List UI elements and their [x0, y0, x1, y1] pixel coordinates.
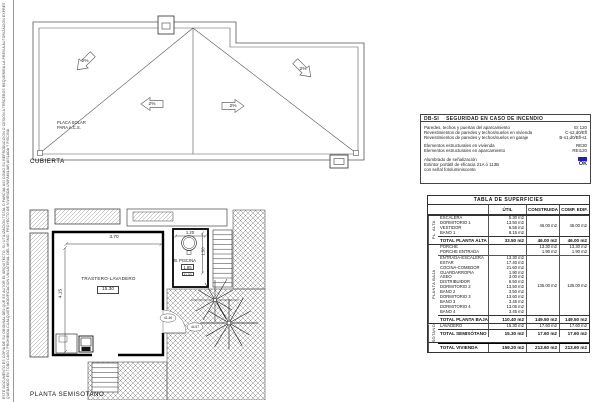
slope-label-4: 2% [297, 67, 309, 72]
total-label: TOTAL PLANTA BAJA [438, 316, 488, 324]
fire-safety-body: Paredes, techos y puertas del aparcamien… [421, 122, 590, 172]
total-util: 15.30 m2 [488, 330, 526, 338]
total-row: TOTAL PLANTA ALTA33.50 m246.00 m246.00 m… [438, 236, 589, 245]
room-block: ENTRADA-ESCALERA13.30 m2ESTAR17.40 m2COC… [438, 255, 589, 315]
slope-arrow-icons [73, 50, 316, 113]
pool-basin-circle [182, 236, 197, 251]
slope-label-2: 2% [146, 102, 158, 107]
total-construida: 46.00 m2 [526, 237, 559, 245]
group-side-label: SÓTANO [428, 324, 438, 342]
group-side-label: PLANTA BAJA [428, 245, 438, 323]
margin-microtext: ESTE DOCUMENTO ES COPIA DE SU ORIGINAL D… [2, 3, 11, 399]
drawing-sheet: ESTE DOCUMENTO ES COPIA DE SU ORIGINAL D… [0, 0, 604, 402]
dim-width-value: 3.70 [104, 235, 124, 240]
room-block-rows: PORCHE13.30 m213.30 m2PORCHE ENTRADA1.90… [438, 245, 589, 255]
header-spacer [428, 205, 488, 214]
total-label: TOTAL PLANTA ALTA [438, 237, 488, 245]
table-group: PLANTA BAJAPORCHE13.30 m213.30 m2PORCHE … [428, 244, 589, 323]
room-block: PORCHE13.30 m213.30 m2PORCHE ENTRADA1.90… [438, 245, 589, 255]
total-comp: 46.00 m2 [559, 237, 589, 245]
solar-panel-note-line1: PLACA SOLAR [57, 120, 86, 125]
pool-dim-value: 1.20 [181, 230, 199, 235]
roof-plan-drawing [25, 10, 375, 170]
total-comp: 149.50 m2 [559, 316, 589, 324]
trastero-room-label: TRASTERO-LAVADERO [81, 276, 136, 281]
laundry-fixtures [56, 334, 93, 353]
chimney-bottom [330, 155, 348, 168]
fire-row-label: Revestimientos de paredes y techos/suelo… [424, 135, 528, 140]
solar-panel-note-line2: PARA A.C.S. [57, 125, 86, 130]
room-block: ESCALERA5.30 m2DORMITORIO 113.50 m2VESTI… [438, 216, 589, 236]
fire-row-value [584, 167, 587, 172]
total-util: 159.20 m2 [488, 344, 526, 352]
surfaces-table: TABLA DE SUPERFICIESÚTILCONSTRUIDACOMP. … [427, 195, 590, 353]
group-side-label: PL. ALTA [428, 216, 438, 244]
fire-title: SEGURIDAD EN CASO DE INCENDIO [446, 117, 543, 119]
total-row: TOTAL PLANTA BAJA110.40 m2149.50 m2149.5… [438, 315, 589, 324]
surfaces-table-header: ÚTILCONSTRUIDACOMP. EDIF. [428, 205, 589, 215]
fire-row: Elementos estructurales en aparcamientoR… [424, 148, 587, 153]
fire-safety-box: DB-SI SEGURIDAD EN CASO DE INCENDIO Pare… [420, 114, 591, 184]
total-row: TOTAL VIVIENDA159.20 m2213.60 m2213.60 m… [438, 343, 589, 352]
total-util: 33.50 m2 [488, 237, 526, 245]
total-label: TOTAL VIVIENDA [438, 344, 488, 352]
total-row: TOTAL SEMISÓTANO15.30 m217.60 m217.60 m2 [438, 329, 589, 338]
fire-row: con señal fotoluminiscente [424, 167, 587, 172]
pool-room-label: B. PISCINA [173, 258, 197, 263]
solar-panel-note: PLACA SOLAR PARA A.C.S. [57, 120, 86, 131]
chimney-top [158, 16, 174, 34]
dim-height-value: 4.15 [59, 284, 64, 304]
table-group: TOTAL VIVIENDA159.20 m2213.60 m2213.60 m… [428, 342, 589, 352]
fire-paragraph: Alumbrado de señalizaciónExtintor portát… [424, 157, 587, 172]
fire-row-label: con señal fotoluminiscente [424, 167, 476, 172]
slope-label-3: 2% [227, 104, 239, 109]
block-comp: 46.00 m2 [559, 216, 589, 236]
total-comp: 17.60 m2 [559, 330, 589, 338]
block-comp: 135.00 m2 [559, 256, 589, 315]
roof-drain-boxes [38, 151, 359, 156]
emergency-light-icon [578, 157, 587, 161]
fire-paragraph: Paredes, techos y puertas del aparcamien… [424, 125, 587, 140]
col-header-construida: CONSTRUIDA [526, 205, 559, 214]
fire-row-value: REI120 [569, 148, 587, 153]
roof-plan-title: CUBIERTA [30, 158, 65, 165]
table-group: PL. ALTAESCALERA5.30 m2DORMITORIO 113.50… [428, 215, 589, 244]
fire-code: DB-SI [424, 117, 439, 119]
fire-row: Revestimientos de paredes y techos/suelo… [424, 135, 587, 140]
total-comp: 213.60 m2 [559, 344, 589, 352]
pool-level-value: 41.30 [182, 272, 194, 277]
group-body: ESCALERA5.30 m2DORMITORIO 113.50 m2VESTI… [438, 216, 589, 244]
trastero-area-value: 15.30 [97, 286, 119, 294]
group-side-label [428, 343, 438, 352]
block-construida: 46.00 m2 [526, 216, 559, 236]
group-body: PORCHE13.30 m213.30 m2PORCHE ENTRADA1.90… [438, 245, 589, 323]
block-construida: 135.00 m2 [526, 256, 559, 315]
level-door-value: 41.46 [161, 316, 175, 320]
fire-paragraph: Elementos estructurales en viviendaRE30E… [424, 143, 587, 153]
stairs-right [213, 230, 232, 287]
basement-plan-drawing [28, 203, 273, 400]
stairs-bottom [92, 363, 118, 392]
table-group: SÓTANOLAVADERO15.30 m217.60 m217.60 m2TO… [428, 323, 589, 342]
total-construida: 149.50 m2 [526, 316, 559, 324]
pool-area-value: 1.85 [181, 264, 194, 270]
total-label: TOTAL SEMISÓTANO [438, 330, 488, 338]
sheet-frame-line [13, 0, 14, 402]
fire-safety-title-row: DB-SI SEGURIDAD EN CASO DE INCENDIO [421, 115, 590, 122]
group-body: TOTAL VIVIENDA159.20 m2213.60 m2213.60 m… [438, 343, 589, 352]
col-header-comp: COMP. EDIF. [559, 205, 589, 214]
roof-outline [33, 22, 364, 160]
pool-dim-right-value: 1.50 [201, 244, 206, 260]
fire-row-value: B-s1,d0/Bfl-s1 [556, 135, 587, 140]
fire-row-label: Elementos estructurales en aparcamiento [424, 148, 505, 153]
margin-note-line2: QUEDANDO EN TODO CASO PROHIBIDA CUALQUIE… [6, 3, 10, 399]
room-block-rows: ENTRADA-ESCALERA13.30 m2ESTAR17.40 m2COC… [438, 256, 526, 315]
slope-label-1: 2% [79, 59, 91, 64]
col-header-util: ÚTIL [488, 205, 526, 214]
room-block-rows: ESCALERA5.30 m2DORMITORIO 113.50 m2VESTI… [438, 216, 526, 236]
total-construida: 213.60 m2 [526, 344, 559, 352]
group-body: LAVADERO15.30 m217.60 m217.60 m2TOTAL SE… [438, 324, 589, 342]
total-construida: 17.60 m2 [526, 330, 559, 338]
total-util: 110.40 m2 [488, 316, 526, 324]
basement-plan-title: PLANTA SEMISOTANO [30, 391, 104, 398]
surfaces-table-title: TABLA DE SUPERFICIES [428, 196, 589, 205]
level-terrace-value: 44.57 [188, 325, 202, 329]
